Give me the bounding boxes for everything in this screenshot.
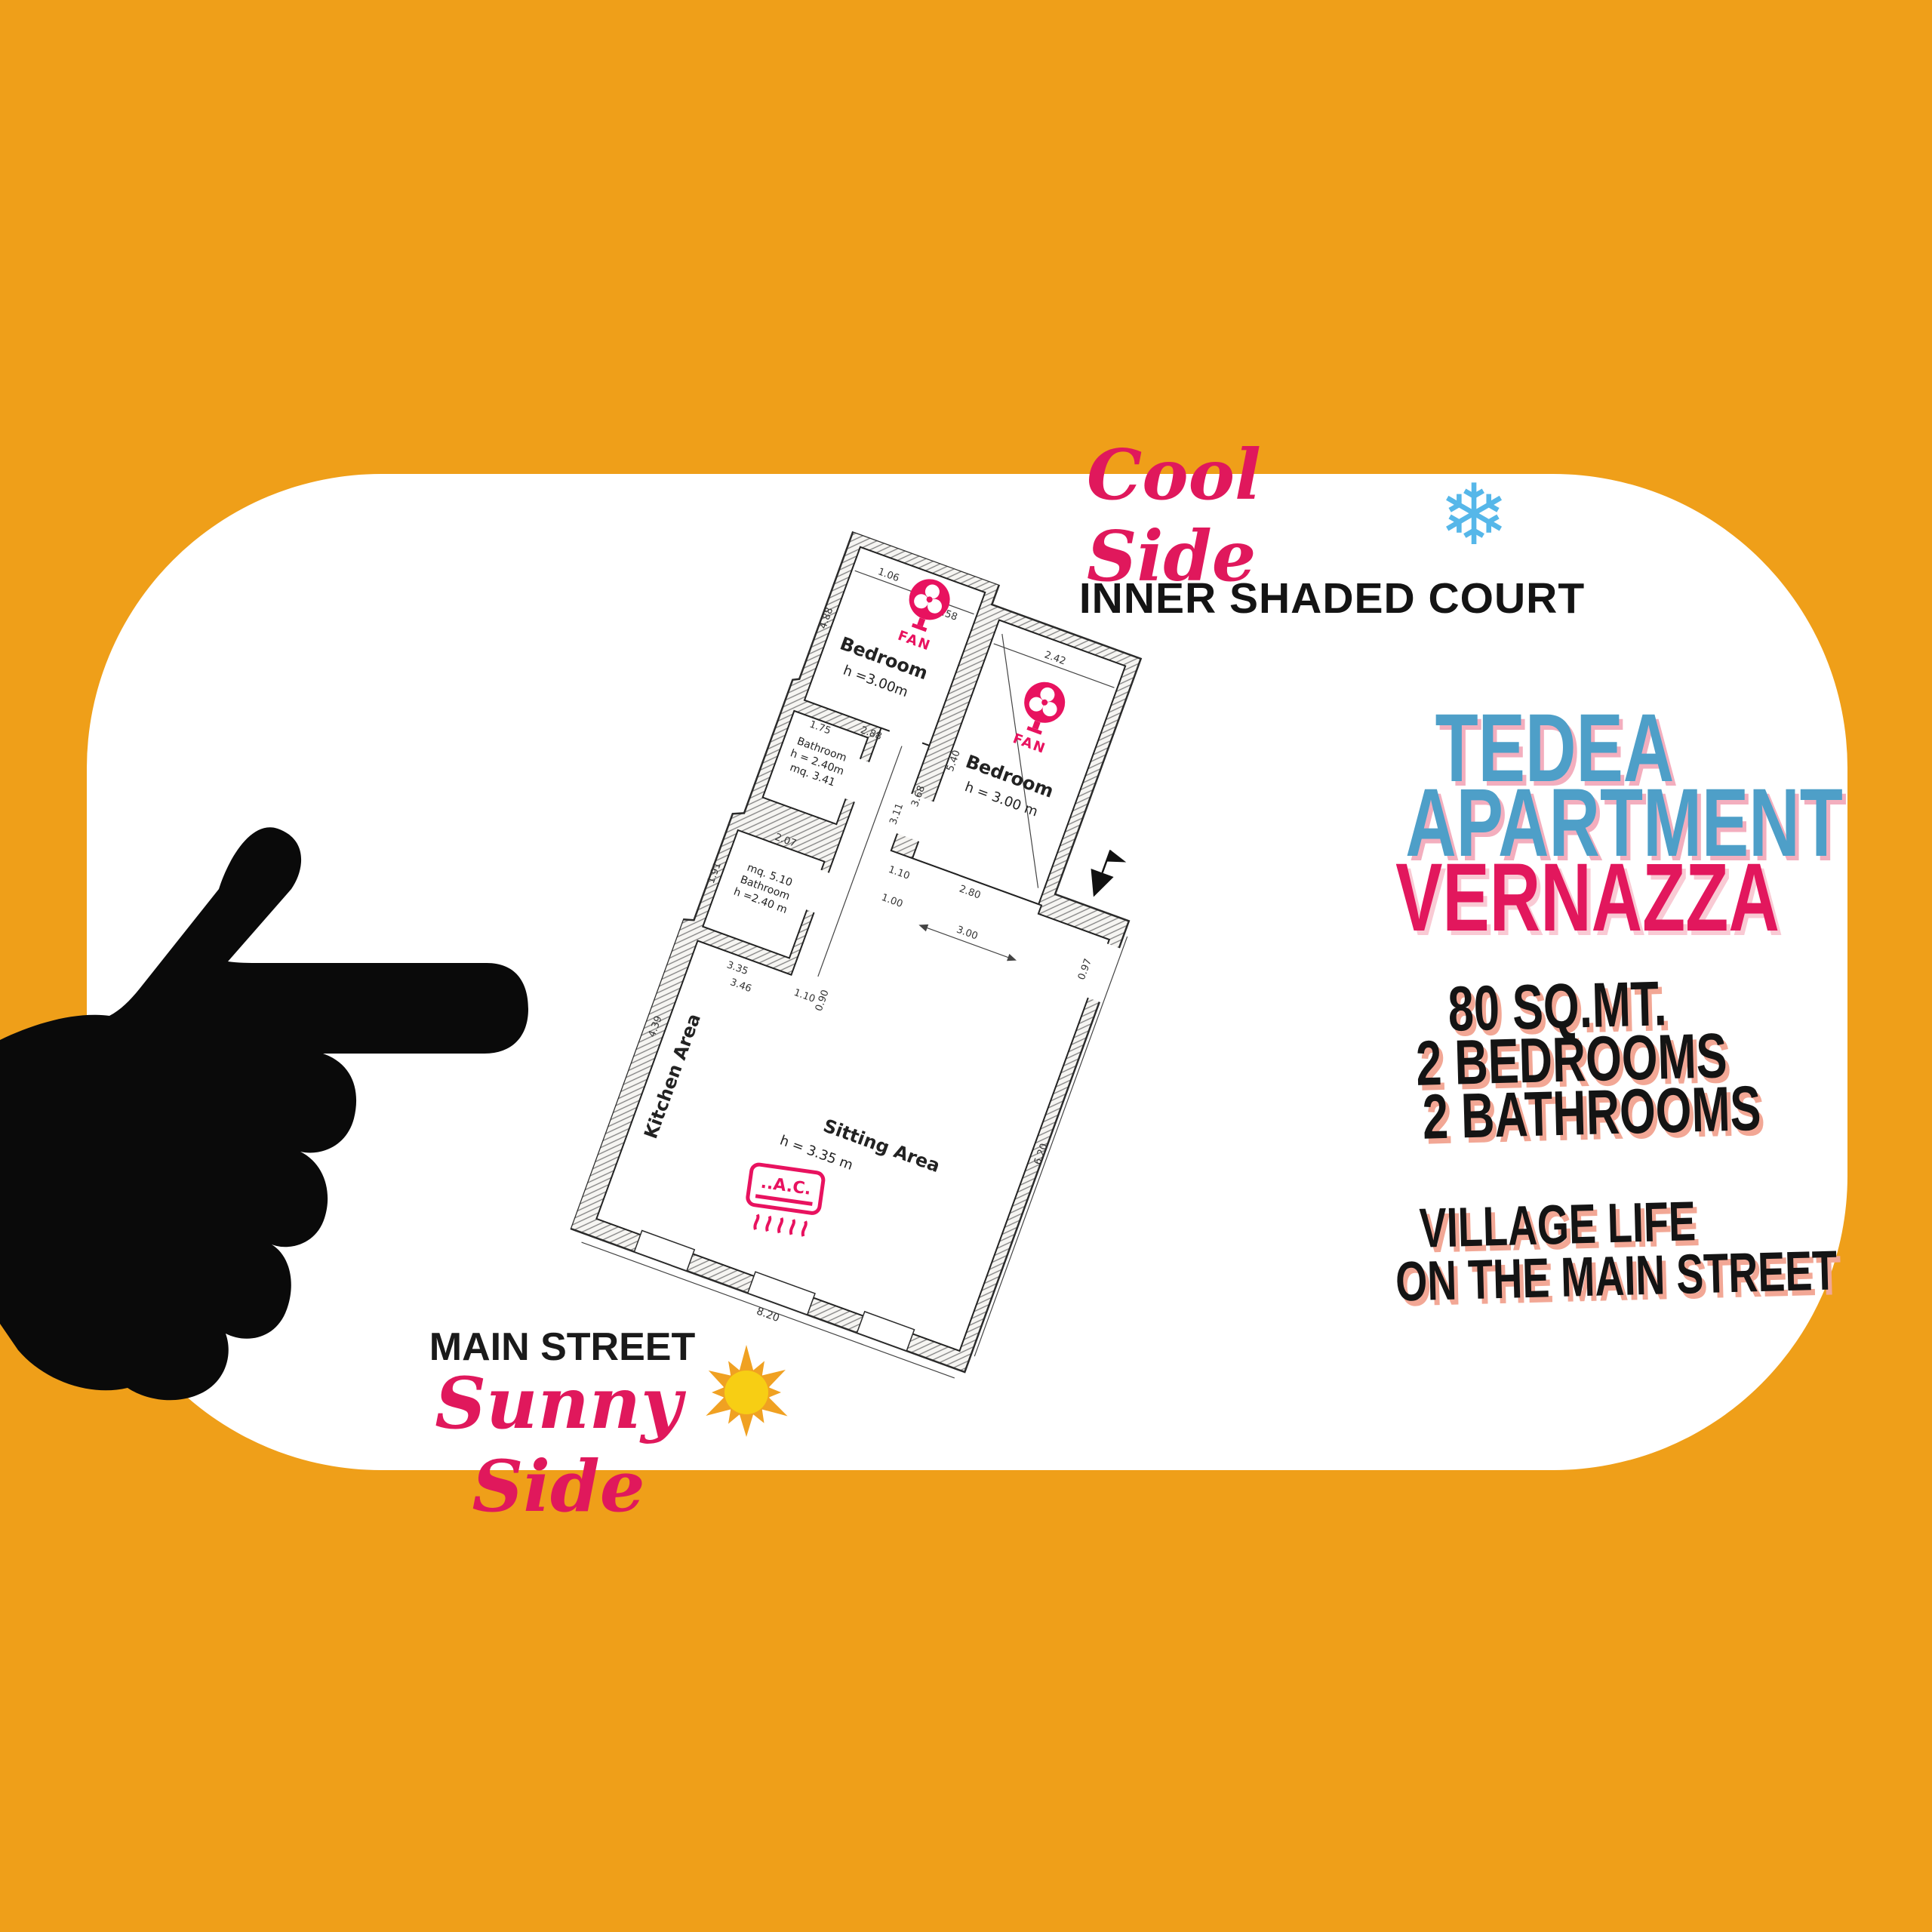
- title-line-3: VERNAZZA: [1324, 860, 1785, 935]
- tagline-block: VILLAGE LIFE ON THE MAIN STREET: [1312, 1192, 1804, 1311]
- pointing-hand-icon: [0, 791, 555, 1410]
- inner-shaded-court-label: INNER SHADED COURT: [1060, 574, 1604, 623]
- sun-icon: [693, 1337, 800, 1444]
- cool-side-label: Cool Side: [1087, 434, 1413, 597]
- entrance-marker: [1082, 846, 1128, 903]
- poster-background: Cool Side ❄ INNER SHADED COURT TEDEA APA…: [0, 0, 1932, 1932]
- title-block: TEDEA APARTMENT VERNAZZA: [1324, 711, 1785, 935]
- cool-side-row: Cool Side ❄: [1087, 466, 1509, 565]
- stats-block: 80 SQ.MT. 2 BEDROOMS 2 BATHROOMS: [1356, 974, 1760, 1146]
- snowflake-icon: ❄: [1438, 473, 1509, 558]
